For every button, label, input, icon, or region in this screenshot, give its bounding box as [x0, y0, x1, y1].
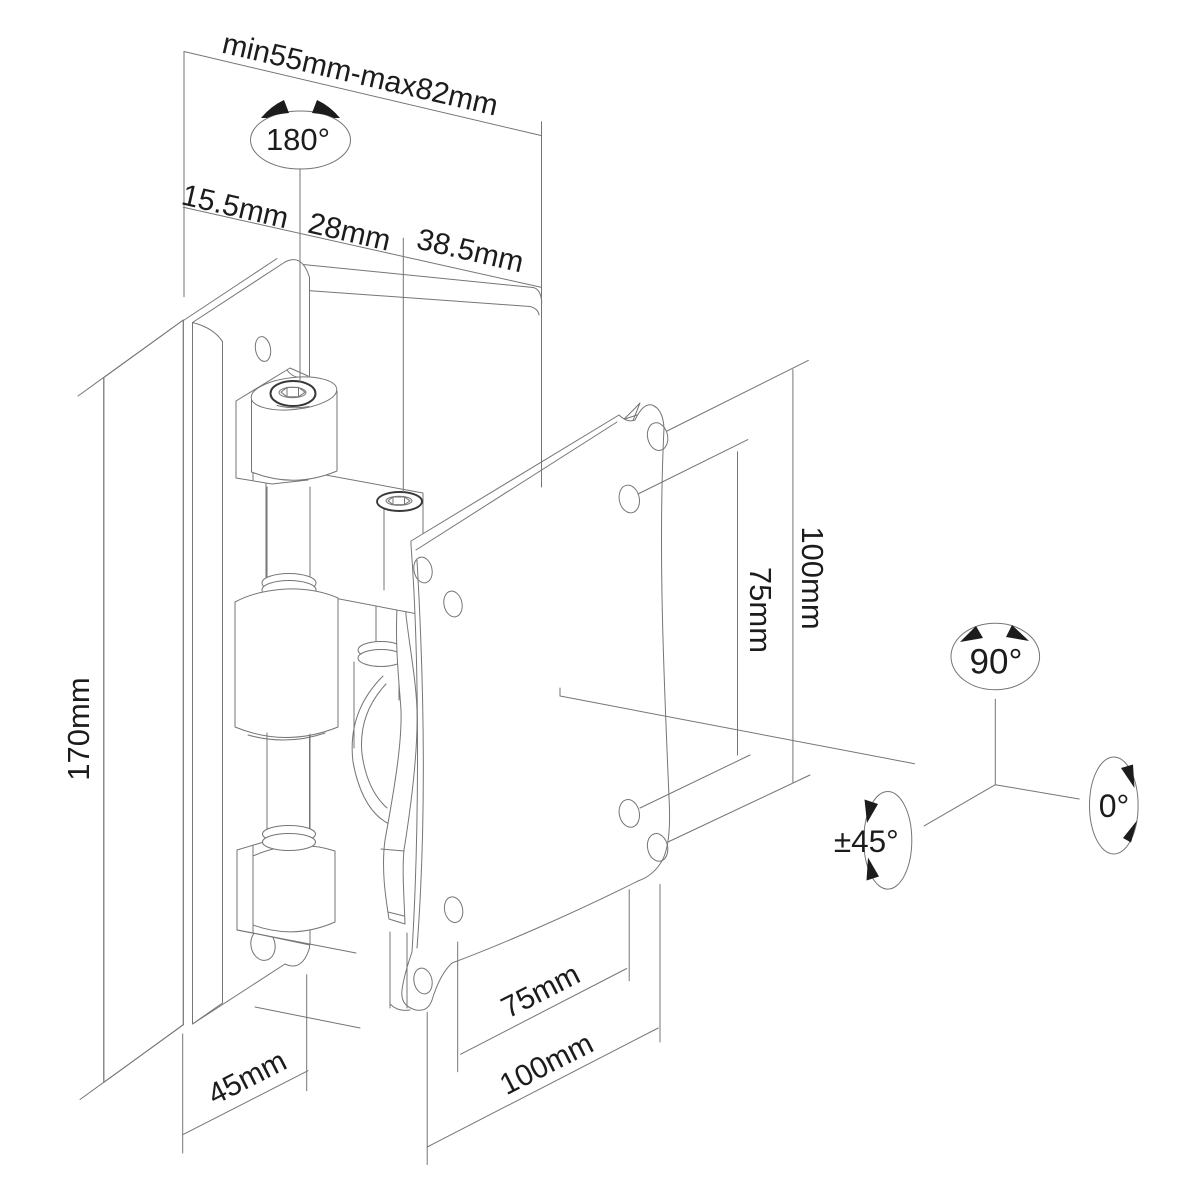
svg-text:min55mm-max82mm: min55mm-max82mm — [219, 27, 501, 123]
svg-text:±45°: ±45° — [834, 823, 899, 859]
svg-text:15.5mm: 15.5mm — [179, 179, 292, 236]
svg-text:0°: 0° — [1099, 788, 1130, 824]
svg-text:170mm: 170mm — [61, 677, 96, 780]
svg-text:38.5mm: 38.5mm — [414, 223, 527, 280]
svg-text:90°: 90° — [970, 642, 1023, 681]
svg-text:180°: 180° — [266, 122, 330, 157]
svg-text:75mm: 75mm — [743, 567, 778, 653]
svg-text:28mm: 28mm — [305, 207, 394, 258]
svg-text:75mm: 75mm — [496, 958, 585, 1025]
svg-text:100mm: 100mm — [795, 526, 830, 629]
svg-text:100mm: 100mm — [495, 1027, 599, 1102]
